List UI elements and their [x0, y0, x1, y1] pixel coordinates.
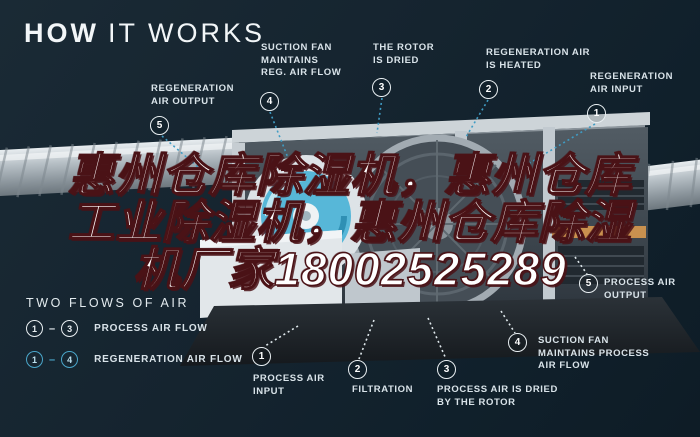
legend-title: TWO FLOWS OF AIR — [26, 296, 243, 310]
legend-circle-from: 1 — [26, 351, 43, 368]
callout-process-air-dried-label: PROCESS AIR IS DRIED BY THE ROTOR — [437, 384, 558, 409]
callout-filtration-label: FILTRATION — [352, 384, 413, 397]
title-bold: HOW — [24, 18, 99, 48]
page-title: HOWIT WORKS — [24, 18, 265, 49]
callout-filtration-number: 2 — [348, 360, 367, 379]
air-flow-legend: TWO FLOWS OF AIR 1 – 3 PROCESS AIR FLOW … — [26, 296, 243, 368]
watermark-line-3: 机厂家18002525289 — [0, 246, 700, 293]
legend-row-regeneration-air-flow: 1 – 4 REGENERATION AIR FLOW — [26, 351, 243, 368]
legend-label: REGENERATION AIR FLOW — [94, 354, 242, 365]
callout-regeneration-air-input-number: 1 — [587, 104, 606, 123]
callout-regeneration-air-input-label: REGENERATION AIR INPUT — [590, 71, 673, 96]
legend-circle-from: 1 — [26, 320, 43, 337]
watermark-ad-text: 惠州仓库除湿机，惠州仓库 工业除湿机，惠州仓库除湿 机厂家18002525289 — [0, 152, 700, 293]
callout-process-air-input-label: PROCESS AIR INPUT — [253, 373, 325, 398]
callout-suction-fan-process-number: 4 — [508, 333, 527, 352]
callout-suction-fan-process-label: SUCTION FAN MAINTAINS PROCESS AIR FLOW — [538, 335, 649, 373]
callout-rotor-dried-number: 3 — [372, 78, 391, 97]
title-light: IT WORKS — [108, 18, 265, 48]
legend-range-dash: – — [49, 354, 55, 366]
how-it-works-infographic: HOWIT WORKS REGENERATION AIR OUTPUT 5 SU… — [0, 0, 700, 437]
legend-label: PROCESS AIR FLOW — [94, 323, 208, 334]
legend-range-dash: – — [49, 323, 55, 335]
callout-process-air-dried-number: 3 — [437, 360, 456, 379]
callout-regeneration-air-heated-label: REGENERATION AIR IS HEATED — [486, 47, 590, 72]
callout-regeneration-air-heated-number: 2 — [479, 80, 498, 99]
legend-circle-to: 4 — [61, 351, 78, 368]
legend-row-process-air-flow: 1 – 3 PROCESS AIR FLOW — [26, 320, 243, 337]
watermark-line-1: 惠州仓库除湿机，惠州仓库 — [0, 152, 700, 199]
callout-process-air-input-number: 1 — [252, 347, 271, 366]
callout-regeneration-air-output-label: REGENERATION AIR OUTPUT — [151, 83, 234, 108]
callout-rotor-dried-label: THE ROTOR IS DRIED — [373, 42, 434, 67]
callout-suction-fan-reg-number: 4 — [260, 92, 279, 111]
callout-regeneration-air-output-number: 5 — [150, 116, 169, 135]
legend-circle-to: 3 — [61, 320, 78, 337]
callout-suction-fan-reg-label: SUCTION FAN MAINTAINS REG. AIR FLOW — [261, 42, 341, 80]
watermark-line-2: 工业除湿机，惠州仓库除湿 — [0, 199, 700, 246]
